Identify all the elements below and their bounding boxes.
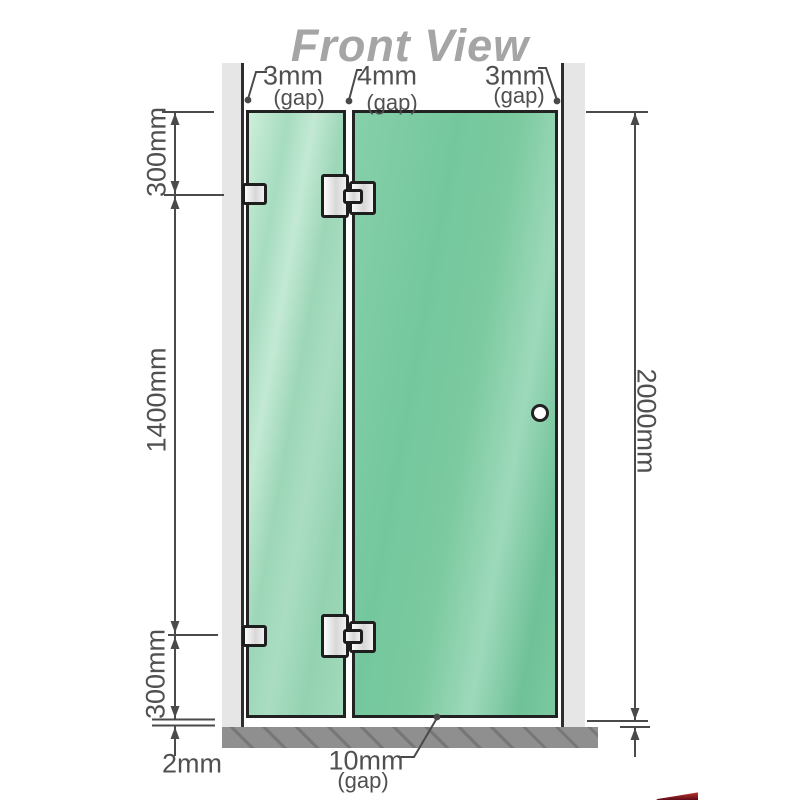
- hinge-bottom-pin: [343, 629, 363, 644]
- door-glass-panel: [352, 110, 558, 718]
- wall-bracket-bottom-icon: [242, 625, 267, 647]
- hinge-top-pin: [343, 189, 363, 204]
- logo-fragment: [656, 792, 698, 800]
- right-wall: [561, 63, 585, 727]
- dim-note-door-bottom-gap: (gap): [337, 770, 388, 792]
- gap-note-top-right: (gap): [493, 85, 544, 107]
- wall-bracket-top-icon: [242, 183, 267, 205]
- gap-note-top-middle: (gap): [366, 92, 417, 114]
- dim-label-segment-middle: 1400mm: [144, 347, 171, 452]
- left-wall: [222, 63, 244, 727]
- dim-label-segment-bottom: 300mm: [143, 629, 170, 719]
- dim-label-floor-gap: 2mm: [162, 751, 222, 778]
- gap-label-top-middle: 4mm: [357, 63, 417, 90]
- shower-base: [222, 727, 598, 748]
- door-knob-icon: [531, 404, 549, 422]
- dim-label-total-height: 2000mm: [633, 368, 660, 473]
- front-view-diagram: Front View: [0, 0, 800, 800]
- gap-note-top-left: (gap): [273, 87, 324, 109]
- dim-label-segment-top: 300mm: [144, 107, 171, 197]
